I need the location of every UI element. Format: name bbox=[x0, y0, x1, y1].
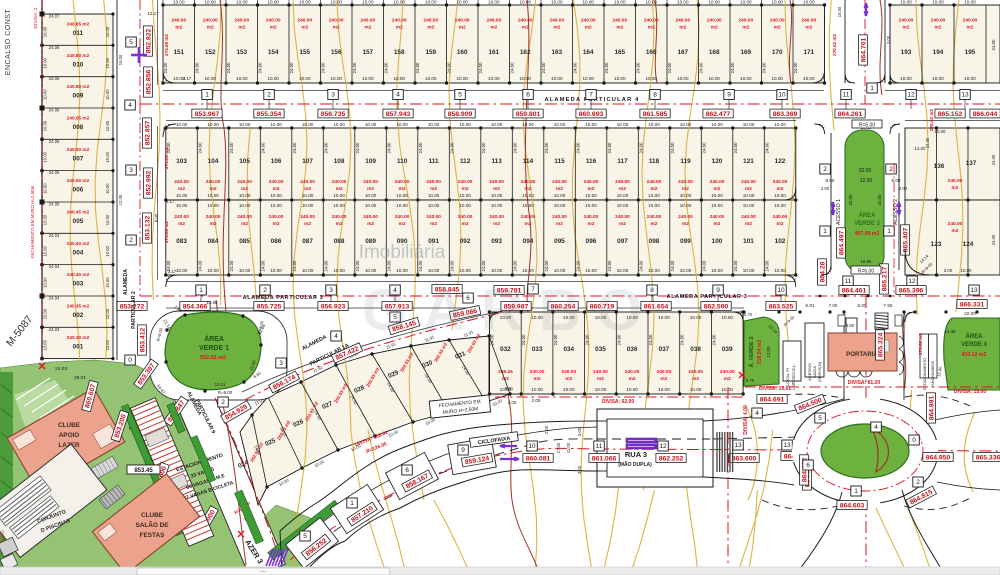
svg-text:R=6.00: R=6.00 bbox=[858, 268, 874, 274]
svg-text:853.412: 853.412 bbox=[139, 328, 146, 353]
svg-text:ALAMEDA PARTICULAR 3: ALAMEDA PARTICULAR 3 bbox=[243, 295, 324, 301]
svg-text:010: 010 bbox=[73, 61, 84, 68]
svg-text:DIVISA: 15.00: DIVISA: 15.00 bbox=[954, 389, 986, 395]
svg-text:10.00: 10.00 bbox=[42, 245, 47, 256]
svg-text:1: 1 bbox=[854, 488, 858, 495]
svg-text:24.00: 24.00 bbox=[260, 260, 265, 272]
svg-text:10.00: 10.00 bbox=[740, 0, 752, 5]
svg-text:240.00: 240.00 bbox=[948, 178, 963, 184]
svg-text:2: 2 bbox=[267, 92, 271, 99]
svg-text:10.00: 10.00 bbox=[522, 193, 534, 198]
svg-text:006: 006 bbox=[73, 187, 84, 194]
svg-text:24.00: 24.00 bbox=[667, 62, 672, 74]
svg-text:864.603: 864.603 bbox=[840, 502, 865, 509]
svg-text:10.00: 10.00 bbox=[531, 387, 543, 392]
svg-text:095: 095 bbox=[554, 238, 565, 245]
svg-text:240.00: 240.00 bbox=[332, 214, 347, 220]
svg-text:32.00: 32.00 bbox=[848, 194, 853, 206]
svg-text:10.00: 10.00 bbox=[428, 268, 440, 273]
svg-text:853.45: 853.45 bbox=[134, 468, 153, 474]
svg-text:10.00: 10.00 bbox=[176, 268, 188, 273]
svg-text:6: 6 bbox=[526, 92, 530, 99]
svg-text:12.68: 12.68 bbox=[207, 300, 219, 305]
svg-text:24.00: 24.00 bbox=[991, 39, 996, 51]
svg-text:24.00: 24.00 bbox=[510, 62, 515, 74]
svg-text:10.00: 10.00 bbox=[743, 203, 755, 208]
svg-text:m2: m2 bbox=[336, 186, 343, 192]
svg-text:100: 100 bbox=[712, 238, 723, 245]
svg-text:098: 098 bbox=[649, 238, 660, 245]
svg-text:852.857: 852.857 bbox=[144, 121, 151, 146]
svg-text:169: 169 bbox=[740, 49, 751, 56]
svg-text:8.01: 8.01 bbox=[505, 386, 514, 391]
svg-text:10.00: 10.00 bbox=[176, 193, 188, 198]
svg-text:R=9.00: R=9.00 bbox=[218, 390, 233, 395]
svg-text:m2: m2 bbox=[777, 186, 784, 192]
svg-text:159: 159 bbox=[425, 49, 436, 56]
svg-text:24.00: 24.00 bbox=[607, 260, 612, 272]
svg-text:24.00: 24.00 bbox=[197, 142, 202, 154]
svg-text:10.00: 10.00 bbox=[585, 203, 597, 208]
svg-text:m2: m2 bbox=[462, 221, 469, 227]
svg-text:240.00: 240.00 bbox=[644, 18, 659, 24]
svg-text:m2: m2 bbox=[619, 221, 626, 227]
svg-text:10.00: 10.00 bbox=[563, 387, 575, 392]
svg-text:240.55 m2: 240.55 m2 bbox=[67, 116, 90, 121]
svg-text:10.00: 10.00 bbox=[396, 203, 408, 208]
svg-text:m2: m2 bbox=[364, 25, 371, 31]
svg-text:24.00: 24.00 bbox=[226, 62, 231, 74]
svg-text:10.00: 10.00 bbox=[961, 268, 973, 273]
svg-text:240.50 m2: 240.50 m2 bbox=[67, 147, 90, 152]
svg-text:6.81: 6.81 bbox=[806, 303, 815, 308]
svg-text:864.28: 864.28 bbox=[819, 261, 826, 282]
svg-text:240.00: 240.00 bbox=[584, 214, 599, 220]
svg-text:097: 097 bbox=[617, 238, 628, 245]
svg-text:10.00: 10.00 bbox=[648, 268, 660, 273]
svg-text:24.00: 24.00 bbox=[575, 142, 580, 154]
svg-text:10.00: 10.00 bbox=[270, 268, 282, 273]
svg-text:FECHAMENTO EM MURO H=2,50M: FECHAMENTO EM MURO H=2,50M bbox=[30, 186, 35, 259]
svg-text:m2: m2 bbox=[490, 25, 497, 31]
svg-text:10.00: 10.00 bbox=[42, 183, 47, 194]
svg-text:10.00: 10.00 bbox=[708, 76, 720, 81]
svg-text:24.07: 24.07 bbox=[49, 14, 60, 19]
svg-text:085: 085 bbox=[239, 238, 250, 245]
svg-text:7.50: 7.50 bbox=[884, 303, 893, 308]
svg-text:10: 10 bbox=[777, 287, 785, 294]
svg-text:24.00: 24.00 bbox=[762, 62, 767, 74]
svg-text:270.62 m2: 270.62 m2 bbox=[832, 34, 837, 56]
svg-text:10.00: 10.00 bbox=[645, 0, 657, 5]
svg-text:10.00: 10.00 bbox=[105, 214, 110, 225]
svg-text:22.00: 22.00 bbox=[964, 311, 976, 316]
svg-text:861.585: 861.585 bbox=[643, 111, 668, 118]
svg-text:24.00: 24.00 bbox=[384, 62, 389, 74]
svg-text:10.00: 10.00 bbox=[425, 0, 437, 5]
svg-text:24.00: 24.00 bbox=[711, 334, 716, 346]
svg-text:12: 12 bbox=[908, 278, 916, 285]
svg-text:10.00: 10.00 bbox=[680, 268, 692, 273]
svg-text:10.00: 10.00 bbox=[488, 0, 500, 5]
svg-text:111: 111 bbox=[429, 158, 439, 165]
svg-text:863.525: 863.525 bbox=[769, 303, 794, 310]
svg-text:10.00: 10.00 bbox=[617, 203, 629, 208]
svg-text:240.80 m2: 240.80 m2 bbox=[67, 84, 90, 89]
svg-text:167: 167 bbox=[677, 49, 688, 56]
svg-text:10.00: 10.00 bbox=[519, 76, 531, 81]
svg-text:103: 103 bbox=[176, 158, 187, 165]
svg-text:240.00: 240.00 bbox=[332, 179, 347, 185]
svg-text:865.217: 865.217 bbox=[881, 267, 888, 292]
svg-text:10.00: 10.00 bbox=[239, 203, 251, 208]
svg-text:124: 124 bbox=[963, 241, 974, 248]
svg-text:10.00: 10.00 bbox=[932, 76, 944, 81]
svg-text:10.00: 10.00 bbox=[207, 122, 219, 127]
svg-text:10.00: 10.00 bbox=[459, 203, 471, 208]
svg-text:10.00: 10.00 bbox=[900, 76, 912, 81]
svg-text:161: 161 bbox=[488, 49, 499, 56]
svg-text:240.00: 240.00 bbox=[206, 179, 221, 185]
svg-text:10.00: 10.00 bbox=[900, 0, 912, 5]
svg-text:10.00: 10.00 bbox=[270, 193, 282, 198]
svg-text:10.00: 10.00 bbox=[42, 57, 47, 68]
svg-text:162: 162 bbox=[520, 49, 531, 56]
svg-text:10.00: 10.00 bbox=[743, 193, 755, 198]
svg-text:853.967: 853.967 bbox=[195, 111, 220, 118]
svg-text:24.06: 24.06 bbox=[49, 108, 60, 113]
svg-text:24.00: 24.00 bbox=[764, 142, 769, 154]
svg-text:m2: m2 bbox=[399, 186, 406, 192]
svg-text:853.132: 853.132 bbox=[144, 216, 151, 241]
svg-text:10.00: 10.00 bbox=[105, 120, 110, 131]
svg-text:10.00: 10.00 bbox=[658, 387, 670, 392]
svg-text:24.00: 24.00 bbox=[352, 62, 357, 74]
svg-text:10.00: 10.00 bbox=[614, 0, 626, 5]
svg-text:11: 11 bbox=[843, 92, 850, 99]
svg-text:m2: m2 bbox=[742, 25, 749, 31]
svg-text:240.00: 240.00 bbox=[678, 179, 693, 185]
svg-text:m2: m2 bbox=[210, 186, 217, 192]
svg-text:12.00: 12.00 bbox=[860, 178, 873, 184]
svg-text:11: 11 bbox=[845, 278, 852, 285]
svg-text:24.00: 24.00 bbox=[229, 260, 234, 272]
svg-text:GARBO: GARBO bbox=[362, 278, 658, 343]
svg-text:m2: m2 bbox=[714, 186, 721, 192]
svg-text:864.891: 864.891 bbox=[928, 396, 935, 421]
svg-text:240.00: 240.00 bbox=[426, 214, 441, 220]
svg-text:m2: m2 bbox=[396, 25, 403, 31]
svg-text:10.00: 10.00 bbox=[690, 315, 702, 320]
svg-text:24.00: 24.00 bbox=[163, 62, 168, 74]
svg-text:240.00: 240.00 bbox=[395, 214, 410, 220]
svg-text:FUNCIONÁRIOS: FUNCIONÁRIOS bbox=[931, 360, 935, 387]
svg-text:m2: m2 bbox=[805, 25, 812, 31]
svg-text:240.00: 240.00 bbox=[174, 179, 189, 185]
svg-text:011: 011 bbox=[73, 30, 84, 37]
svg-text:m2: m2 bbox=[565, 376, 572, 382]
svg-text:24.00: 24.00 bbox=[793, 62, 798, 74]
svg-text:240.00: 240.00 bbox=[203, 18, 218, 24]
svg-text:24.05: 24.05 bbox=[49, 202, 60, 207]
svg-text:107: 107 bbox=[302, 158, 313, 165]
svg-text:240.00: 240.00 bbox=[360, 18, 375, 24]
svg-text:1: 1 bbox=[823, 228, 827, 235]
svg-text:857.943: 857.943 bbox=[386, 111, 411, 118]
svg-text:10.00: 10.00 bbox=[582, 0, 594, 5]
svg-text:PORTARIA: PORTARIA bbox=[846, 351, 878, 358]
svg-text:ALAMEDA PARTICULAR 3: ALAMEDA PARTICULAR 3 bbox=[667, 294, 748, 300]
svg-text:10.00: 10.00 bbox=[302, 193, 314, 198]
svg-text:240.00: 240.00 bbox=[584, 179, 599, 185]
svg-text:10.00: 10.00 bbox=[677, 0, 689, 5]
svg-text:240.00: 240.00 bbox=[552, 214, 567, 220]
svg-text:407.09 m2: 407.09 m2 bbox=[855, 231, 880, 237]
svg-text:8.00: 8.00 bbox=[892, 178, 901, 183]
svg-text:240.00: 240.00 bbox=[738, 18, 753, 24]
svg-text:m2: m2 bbox=[525, 221, 532, 227]
svg-text:RUA 3: RUA 3 bbox=[625, 450, 647, 459]
svg-text:118: 118 bbox=[649, 158, 660, 165]
svg-text:155: 155 bbox=[299, 49, 310, 56]
svg-text:10.00: 10.00 bbox=[365, 122, 377, 127]
svg-text:24.00: 24.00 bbox=[321, 62, 326, 74]
svg-text:9: 9 bbox=[716, 287, 720, 294]
svg-text:10.00: 10.00 bbox=[333, 193, 345, 198]
svg-text:m2: m2 bbox=[367, 221, 374, 227]
svg-text:10.00: 10.00 bbox=[239, 122, 251, 127]
svg-text:24.00: 24.00 bbox=[292, 142, 297, 154]
svg-text:32.00: 32.00 bbox=[877, 194, 882, 206]
svg-text:240.00: 240.00 bbox=[707, 18, 722, 24]
svg-text:m2: m2 bbox=[777, 221, 784, 227]
svg-text:m2: m2 bbox=[967, 25, 974, 31]
svg-text:109: 109 bbox=[365, 158, 376, 165]
svg-text:24.00: 24.00 bbox=[733, 142, 738, 154]
svg-text:002: 002 bbox=[73, 312, 84, 319]
svg-text:m2: m2 bbox=[273, 186, 280, 192]
svg-text:10.00: 10.00 bbox=[365, 203, 377, 208]
svg-text:2.17: 2.17 bbox=[166, 199, 175, 204]
svg-text:170: 170 bbox=[772, 49, 783, 56]
svg-text:10.00: 10.00 bbox=[554, 122, 566, 127]
svg-text:240.00: 240.00 bbox=[931, 18, 946, 24]
svg-text:154: 154 bbox=[268, 49, 279, 56]
svg-text:m2: m2 bbox=[648, 25, 655, 31]
svg-text:240.40 m2: 240.40 m2 bbox=[67, 272, 90, 277]
svg-text:866.331: 866.331 bbox=[960, 301, 985, 308]
svg-text:m2: m2 bbox=[534, 376, 541, 382]
svg-text:099: 099 bbox=[680, 238, 691, 245]
svg-text:168: 168 bbox=[709, 49, 720, 56]
svg-text:m2: m2 bbox=[430, 186, 437, 192]
svg-text:864.261: 864.261 bbox=[838, 111, 863, 118]
svg-text:240.00: 240.00 bbox=[300, 179, 315, 185]
svg-text:m2: m2 bbox=[585, 25, 592, 31]
svg-text:10.00: 10.00 bbox=[803, 0, 815, 5]
svg-text:24.00: 24.00 bbox=[512, 260, 517, 272]
svg-text:10.00: 10.00 bbox=[522, 122, 534, 127]
svg-text:m2: m2 bbox=[679, 25, 686, 31]
svg-text:24.00: 24.00 bbox=[764, 260, 769, 272]
svg-text:240.00: 240.00 bbox=[561, 369, 576, 375]
svg-text:156: 156 bbox=[331, 49, 342, 56]
svg-text:24.00: 24.00 bbox=[730, 62, 735, 74]
svg-text:008: 008 bbox=[73, 124, 84, 131]
svg-text:865.324: 865.324 bbox=[877, 333, 884, 358]
svg-text:m2: m2 bbox=[367, 186, 374, 192]
svg-text:10.00: 10.00 bbox=[204, 0, 216, 5]
svg-text:086: 086 bbox=[271, 238, 282, 245]
svg-text:24.00: 24.00 bbox=[229, 142, 234, 154]
svg-text:10.00: 10.00 bbox=[105, 151, 110, 162]
svg-text:10.00: 10.00 bbox=[677, 76, 689, 81]
svg-text:m2: m2 bbox=[903, 25, 910, 31]
svg-text:ACESSO 1: ACESSO 1 bbox=[836, 199, 842, 225]
svg-text:11: 11 bbox=[596, 443, 603, 450]
svg-text:10.00: 10.00 bbox=[491, 122, 503, 127]
svg-text:24.00: 24.00 bbox=[604, 62, 609, 74]
svg-text:LOCAL P/: LOCAL P/ bbox=[785, 367, 790, 386]
svg-text:10.00: 10.00 bbox=[330, 76, 342, 81]
svg-text:24.00: 24.00 bbox=[355, 142, 360, 154]
svg-text:13: 13 bbox=[734, 442, 742, 449]
svg-text:10.00: 10.00 bbox=[299, 76, 311, 81]
svg-text:270.62 m2: 270.62 m2 bbox=[929, 109, 934, 131]
svg-text:240.00: 240.00 bbox=[647, 179, 662, 185]
svg-text:24.00: 24.00 bbox=[680, 334, 685, 346]
svg-text:240.00: 240.00 bbox=[171, 18, 186, 24]
svg-text:10.00: 10.00 bbox=[491, 193, 503, 198]
svg-text:m2: m2 bbox=[711, 25, 718, 31]
svg-text:860.081: 860.081 bbox=[526, 455, 551, 462]
svg-text:240.00: 240.00 bbox=[521, 214, 536, 220]
svg-text:240.00: 240.00 bbox=[486, 18, 501, 24]
svg-text:0: 0 bbox=[912, 437, 916, 444]
svg-text:SALÃO DE: SALÃO DE bbox=[135, 520, 169, 529]
svg-text:094: 094 bbox=[523, 238, 534, 245]
svg-text:6: 6 bbox=[405, 467, 409, 474]
svg-text:10.00: 10.00 bbox=[105, 245, 110, 256]
svg-text:10.00: 10.00 bbox=[105, 339, 110, 350]
svg-text:10.00: 10.00 bbox=[491, 203, 503, 208]
svg-text:240.00: 240.00 bbox=[521, 179, 536, 185]
svg-text:LIXO RECICL.: LIXO RECICL. bbox=[791, 364, 796, 390]
svg-text:4: 4 bbox=[128, 102, 132, 109]
svg-text:121: 121 bbox=[743, 158, 754, 165]
svg-text:10.00: 10.00 bbox=[365, 193, 377, 198]
svg-text:240.00: 240.00 bbox=[899, 18, 914, 24]
svg-text:115: 115 bbox=[554, 158, 565, 165]
svg-text:m2: m2 bbox=[493, 186, 500, 192]
svg-text:10.00: 10.00 bbox=[488, 76, 500, 81]
svg-text:24.00: 24.00 bbox=[636, 62, 641, 74]
svg-text:10.00: 10.00 bbox=[680, 203, 692, 208]
svg-text:3.00: 3.00 bbox=[944, 268, 953, 273]
svg-text:240.00: 240.00 bbox=[615, 214, 630, 220]
svg-text:2: 2 bbox=[129, 237, 133, 244]
svg-text:240.00: 240.00 bbox=[458, 179, 473, 185]
svg-text:10.00: 10.00 bbox=[456, 0, 468, 5]
svg-text:10.00: 10.00 bbox=[774, 122, 786, 127]
svg-text:864.691: 864.691 bbox=[760, 396, 785, 403]
svg-text:10.00: 10.00 bbox=[459, 268, 471, 273]
svg-text:2: 2 bbox=[263, 287, 267, 294]
svg-text:240.00: 240.00 bbox=[458, 214, 473, 220]
svg-text:12.00: 12.00 bbox=[766, 346, 771, 358]
svg-text:240.00: 240.00 bbox=[234, 18, 249, 24]
svg-text:10.00: 10.00 bbox=[774, 203, 786, 208]
svg-text:VERDE 1: VERDE 1 bbox=[199, 345, 229, 352]
svg-text:864.950: 864.950 bbox=[926, 454, 951, 461]
svg-text:274.68 m2: 274.68 m2 bbox=[164, 147, 169, 169]
svg-text:10.00: 10.00 bbox=[617, 193, 629, 198]
svg-text:DIVISA: 4.00: DIVISA: 4.00 bbox=[743, 405, 749, 435]
svg-text:240.00: 240.00 bbox=[710, 179, 725, 185]
svg-text:m2: m2 bbox=[175, 25, 182, 31]
svg-text:10.00: 10.00 bbox=[519, 0, 531, 5]
svg-text:2.00: 2.00 bbox=[544, 425, 549, 434]
svg-text:136: 136 bbox=[934, 163, 945, 170]
svg-text:24.00: 24.00 bbox=[699, 62, 704, 74]
svg-text:m2: m2 bbox=[430, 221, 437, 227]
svg-text:1: 1 bbox=[870, 85, 874, 92]
svg-text:10.00: 10.00 bbox=[173, 0, 185, 5]
svg-text:24.00: 24.00 bbox=[481, 260, 486, 272]
svg-text:240.00: 240.00 bbox=[300, 214, 315, 220]
svg-text:863.600: 863.600 bbox=[732, 455, 757, 462]
svg-text:m2: m2 bbox=[522, 25, 529, 31]
svg-text:24.00: 24.00 bbox=[197, 260, 202, 272]
svg-text:240.00: 240.00 bbox=[363, 179, 378, 185]
svg-text:096: 096 bbox=[586, 238, 597, 245]
svg-text:m2: m2 bbox=[619, 186, 626, 192]
svg-text:240.00: 240.00 bbox=[455, 18, 470, 24]
svg-text:18.85: 18.85 bbox=[861, 259, 873, 264]
svg-text:m2: m2 bbox=[427, 25, 434, 31]
svg-text:852.856: 852.856 bbox=[145, 70, 152, 95]
svg-text:24.04: 24.04 bbox=[49, 296, 60, 301]
svg-text:10.00: 10.00 bbox=[680, 193, 692, 198]
svg-text:860.10: 860.10 bbox=[1, 530, 5, 542]
svg-text:m2: m2 bbox=[301, 25, 308, 31]
svg-text:m2: m2 bbox=[304, 186, 311, 192]
svg-text:160: 160 bbox=[457, 49, 468, 56]
svg-text:2.00: 2.00 bbox=[508, 400, 517, 405]
svg-text:240.00: 240.00 bbox=[647, 214, 662, 220]
svg-text:866.044: 866.044 bbox=[973, 111, 998, 118]
svg-text:24.00: 24.00 bbox=[991, 154, 996, 165]
svg-text:240.00: 240.00 bbox=[581, 18, 596, 24]
svg-text:112: 112 bbox=[460, 158, 471, 165]
svg-text:m2: m2 bbox=[588, 221, 595, 227]
svg-text:m2: m2 bbox=[241, 186, 248, 192]
svg-text:10.00: 10.00 bbox=[267, 0, 279, 5]
svg-text:24.00: 24.00 bbox=[701, 260, 706, 272]
svg-text:13.11: 13.11 bbox=[215, 382, 226, 387]
svg-text:24.00: 24.00 bbox=[449, 260, 454, 272]
svg-text:m2: m2 bbox=[660, 376, 667, 382]
svg-text:10.00: 10.00 bbox=[396, 193, 408, 198]
svg-text:10.00: 10.00 bbox=[333, 268, 345, 273]
svg-text:R=6.00: R=6.00 bbox=[859, 122, 875, 128]
svg-text:m2: m2 bbox=[597, 376, 604, 382]
svg-text:10.00: 10.00 bbox=[207, 268, 219, 273]
svg-text:10.00: 10.00 bbox=[645, 76, 657, 81]
svg-text:240.00: 240.00 bbox=[237, 214, 252, 220]
svg-text:m2: m2 bbox=[745, 186, 752, 192]
svg-text:10.00: 10.00 bbox=[176, 203, 188, 208]
